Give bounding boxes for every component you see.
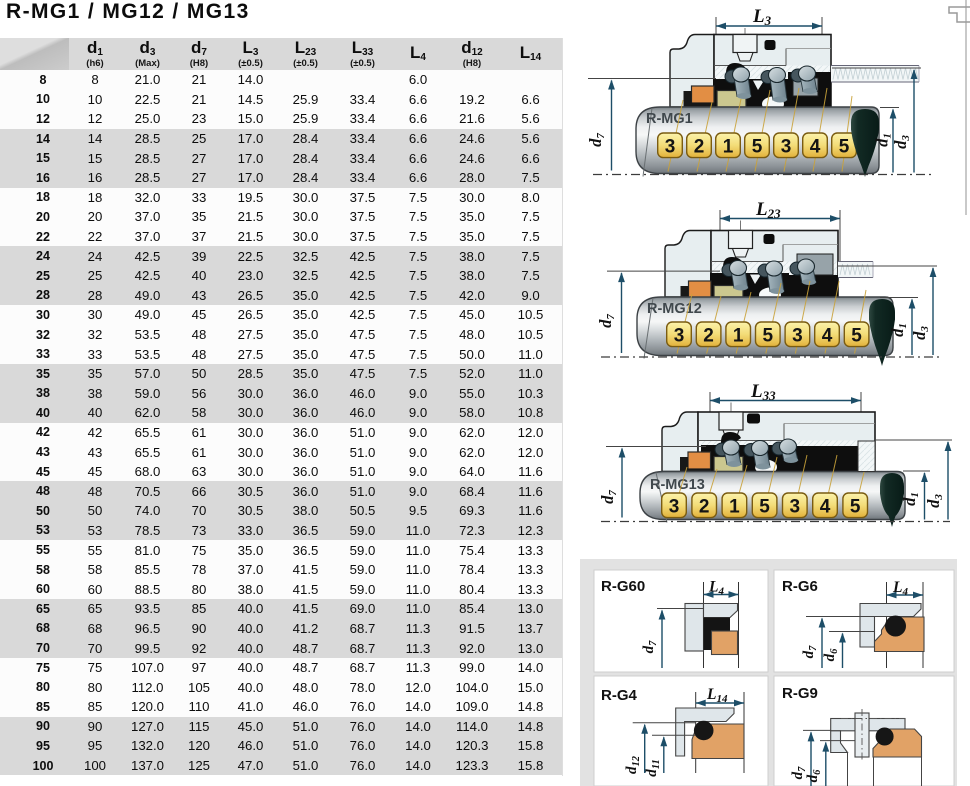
svg-text:1: 1 [723, 136, 734, 157]
svg-text:R-MG12: R-MG12 [647, 301, 702, 317]
svg-text:R-G6: R-G6 [782, 578, 818, 595]
svg-text:3: 3 [790, 496, 801, 517]
svg-text:4: 4 [822, 325, 833, 346]
svg-text:3: 3 [792, 325, 803, 346]
svg-text:R-G60: R-G60 [601, 578, 645, 595]
svg-text:3: 3 [669, 496, 680, 517]
svg-text:1: 1 [733, 325, 744, 346]
svg-text:2: 2 [699, 496, 710, 517]
svg-text:5: 5 [763, 325, 774, 346]
svg-text:2: 2 [694, 136, 705, 157]
svg-text:R-G4: R-G4 [601, 687, 637, 704]
svg-text:3: 3 [674, 325, 685, 346]
svg-text:5: 5 [839, 136, 850, 157]
svg-text:5: 5 [851, 325, 862, 346]
svg-text:1: 1 [729, 496, 740, 517]
svg-text:4: 4 [820, 496, 831, 517]
svg-text:5: 5 [850, 496, 861, 517]
svg-text:R-MG13: R-MG13 [650, 477, 705, 493]
svg-text:3: 3 [665, 136, 676, 157]
svg-text:R-MG1: R-MG1 [646, 111, 693, 127]
svg-text:4: 4 [810, 136, 821, 157]
svg-text:2: 2 [703, 325, 714, 346]
svg-text:3: 3 [781, 136, 792, 157]
svg-text:R-G9: R-G9 [782, 685, 818, 702]
svg-text:5: 5 [752, 136, 763, 157]
svg-text:5: 5 [759, 496, 770, 517]
